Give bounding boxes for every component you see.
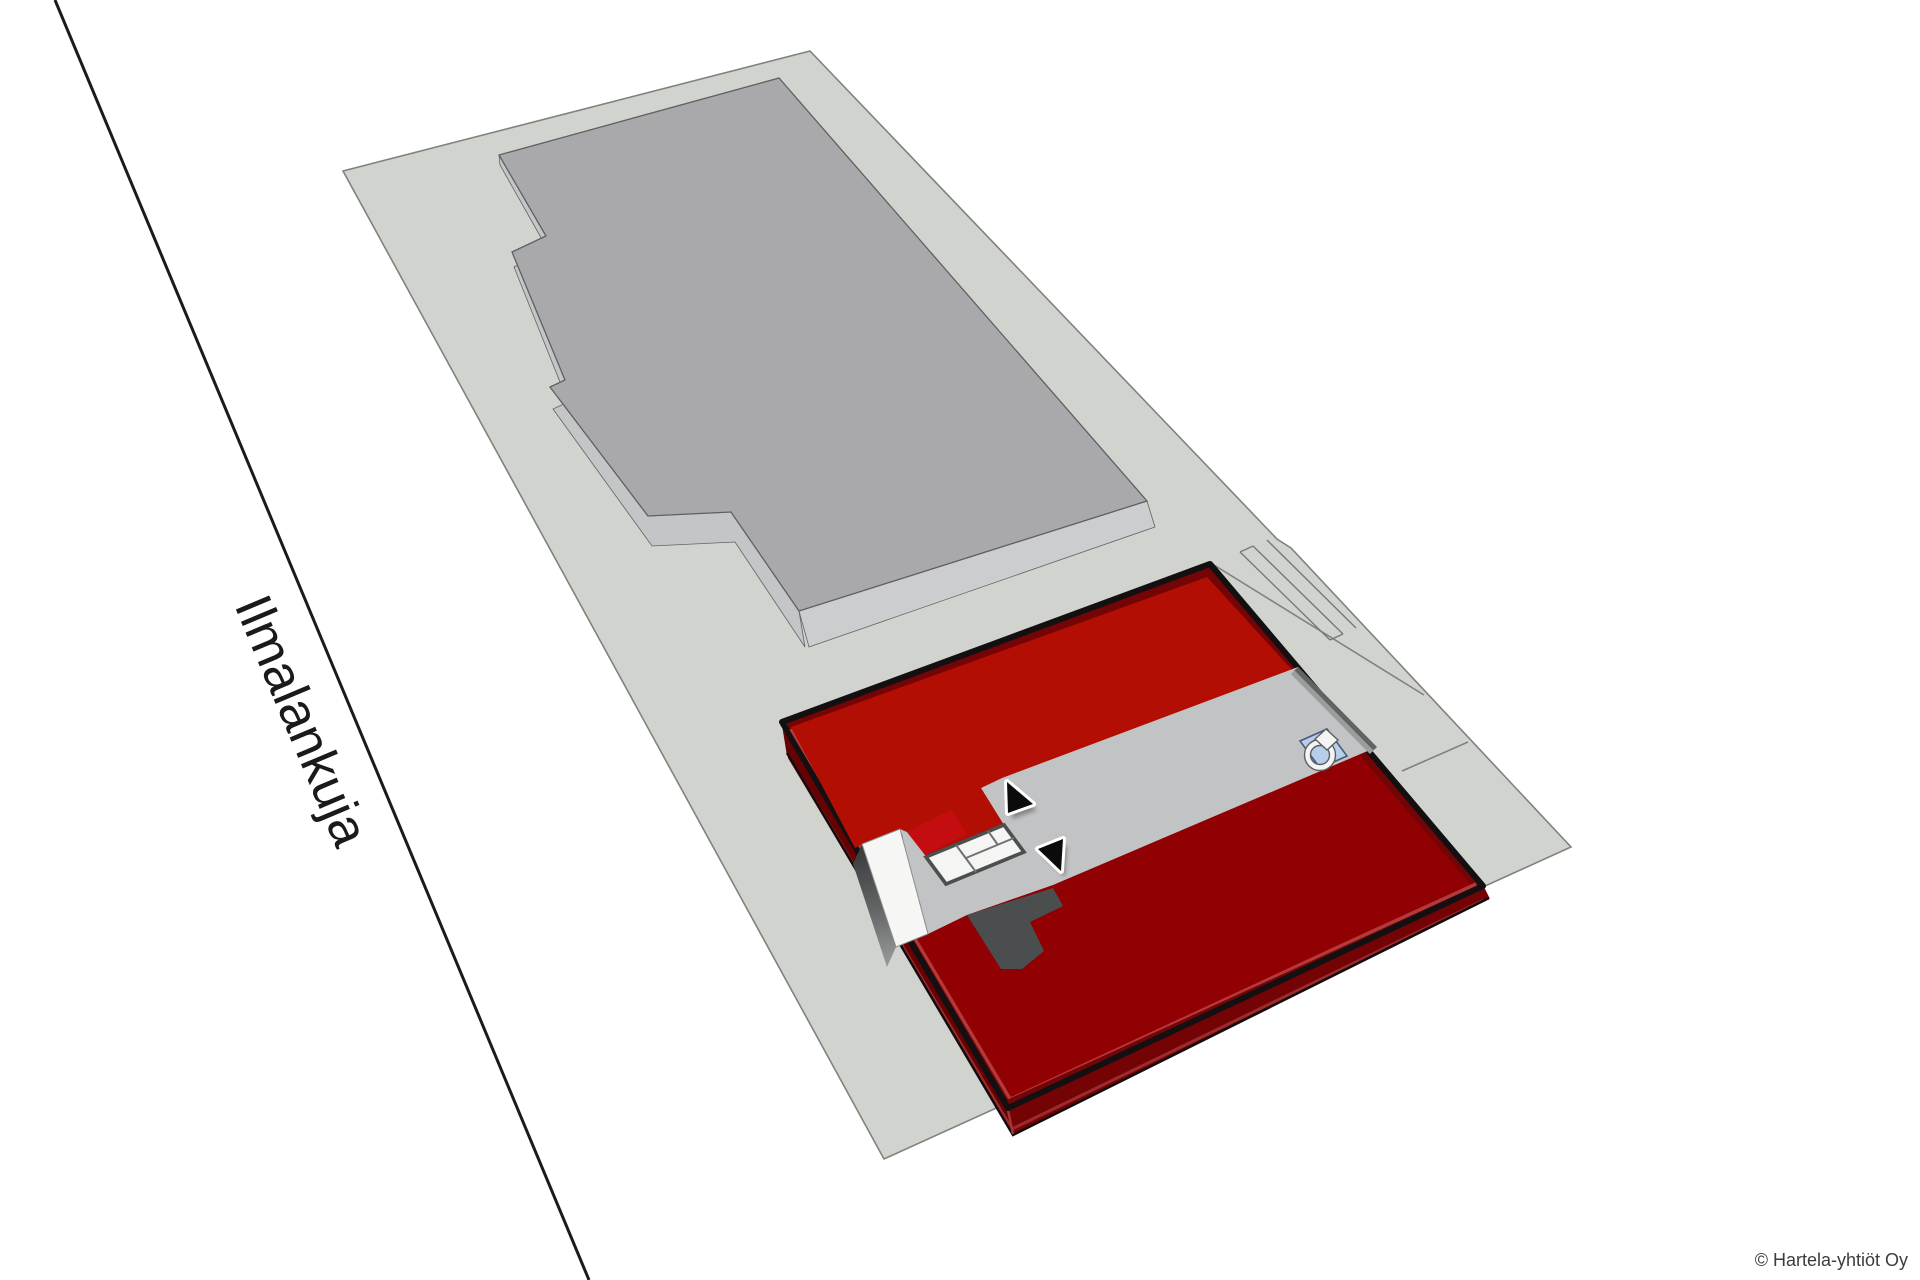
svg-text:© Hartela-yhtiöt Oy: © Hartela-yhtiöt Oy [1755,1250,1908,1270]
